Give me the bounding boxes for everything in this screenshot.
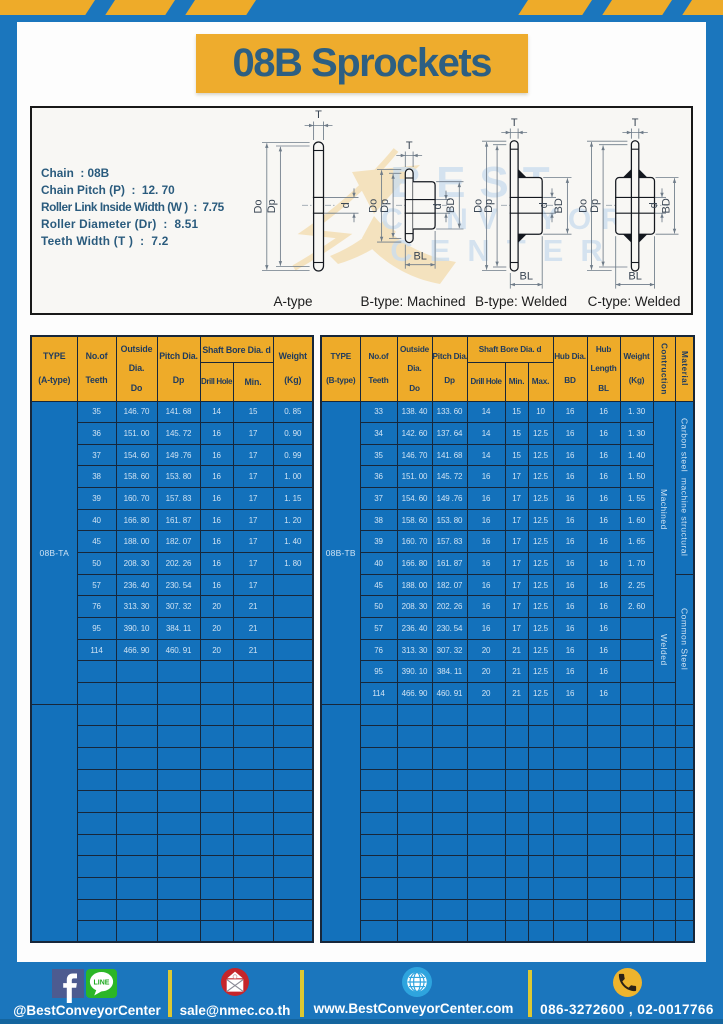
svg-text:T: T — [511, 117, 518, 129]
svg-text:d: d — [340, 202, 352, 208]
svg-text:LINE: LINE — [94, 979, 110, 986]
svg-text:Do: Do — [253, 199, 265, 213]
svg-text:BD: BD — [553, 198, 565, 213]
svg-text:C-type: Welded: C-type: Welded — [588, 294, 681, 309]
svg-text:Dp: Dp — [379, 199, 391, 213]
svg-text:Dp: Dp — [483, 199, 495, 213]
svg-text:BL: BL — [628, 271, 641, 283]
svg-text:d: d — [538, 202, 550, 208]
svg-text:d: d — [648, 202, 660, 208]
svg-text:T: T — [315, 109, 322, 121]
svg-text:BD: BD — [445, 198, 457, 213]
svg-text:T: T — [632, 117, 639, 129]
svg-text:B-type: Welded: B-type: Welded — [475, 294, 567, 309]
svg-text:Do: Do — [577, 199, 589, 213]
svg-text:A-type: A-type — [273, 294, 312, 309]
svg-text:BL: BL — [520, 271, 533, 283]
svg-text:Do: Do — [367, 199, 379, 213]
svg-text:Dp: Dp — [589, 199, 601, 213]
svg-text:B-type: Machined: B-type: Machined — [360, 294, 465, 309]
svg-text:d: d — [432, 203, 444, 209]
svg-text:T: T — [406, 140, 413, 152]
svg-text:Dp: Dp — [266, 199, 278, 213]
svg-text:BD: BD — [660, 198, 672, 213]
svg-text:BL: BL — [413, 251, 426, 263]
